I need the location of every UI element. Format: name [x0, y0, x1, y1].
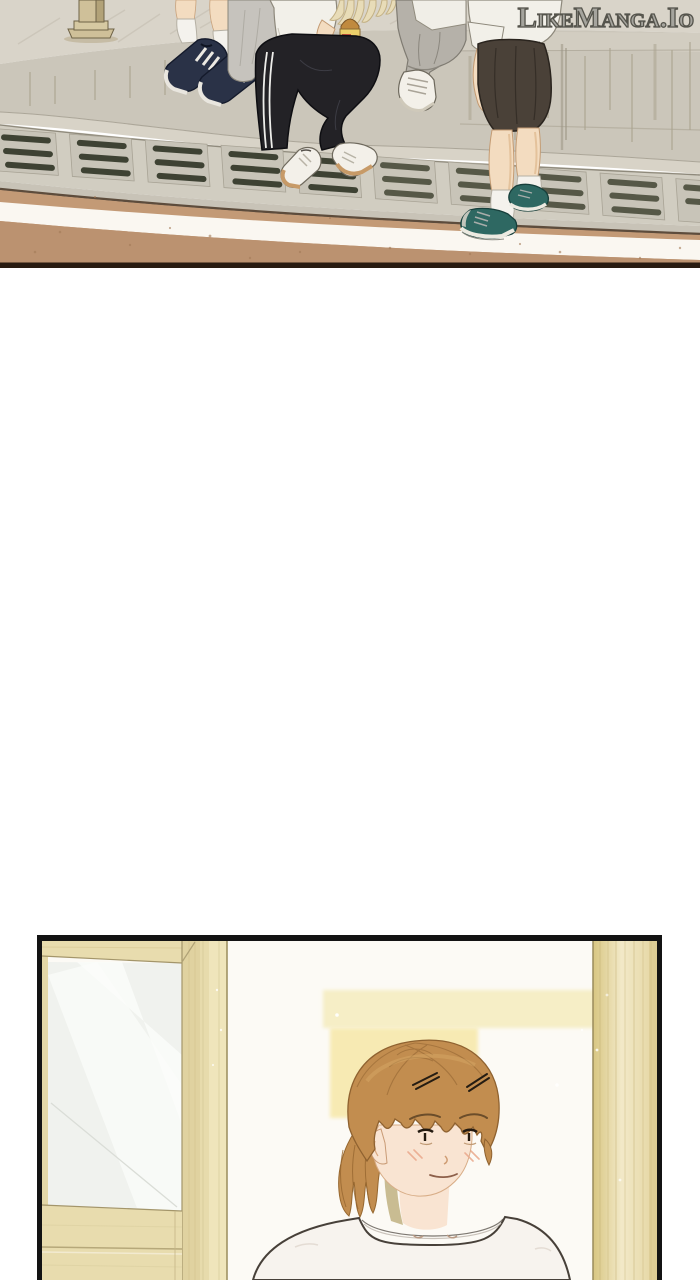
wood-pillar: [593, 935, 657, 1280]
platform-scene: [0, 0, 700, 268]
site-watermark: LikeManga.Io: [518, 0, 694, 36]
door-stile: [182, 941, 227, 1280]
door-frame: [42, 941, 227, 1280]
dark-skirt: [478, 40, 551, 133]
door-glass: [48, 962, 182, 1211]
ankle-sock: [177, 19, 197, 43]
doorway-scene: [37, 935, 662, 1280]
comic-panel-top: [0, 0, 700, 268]
pillar-grain: [600, 935, 651, 1280]
white-sneaker-down: [399, 70, 436, 111]
panel-bottom-border: [0, 263, 700, 269]
door-lower-panel: [42, 1205, 182, 1280]
comic-panel-bottom: [37, 935, 662, 1280]
